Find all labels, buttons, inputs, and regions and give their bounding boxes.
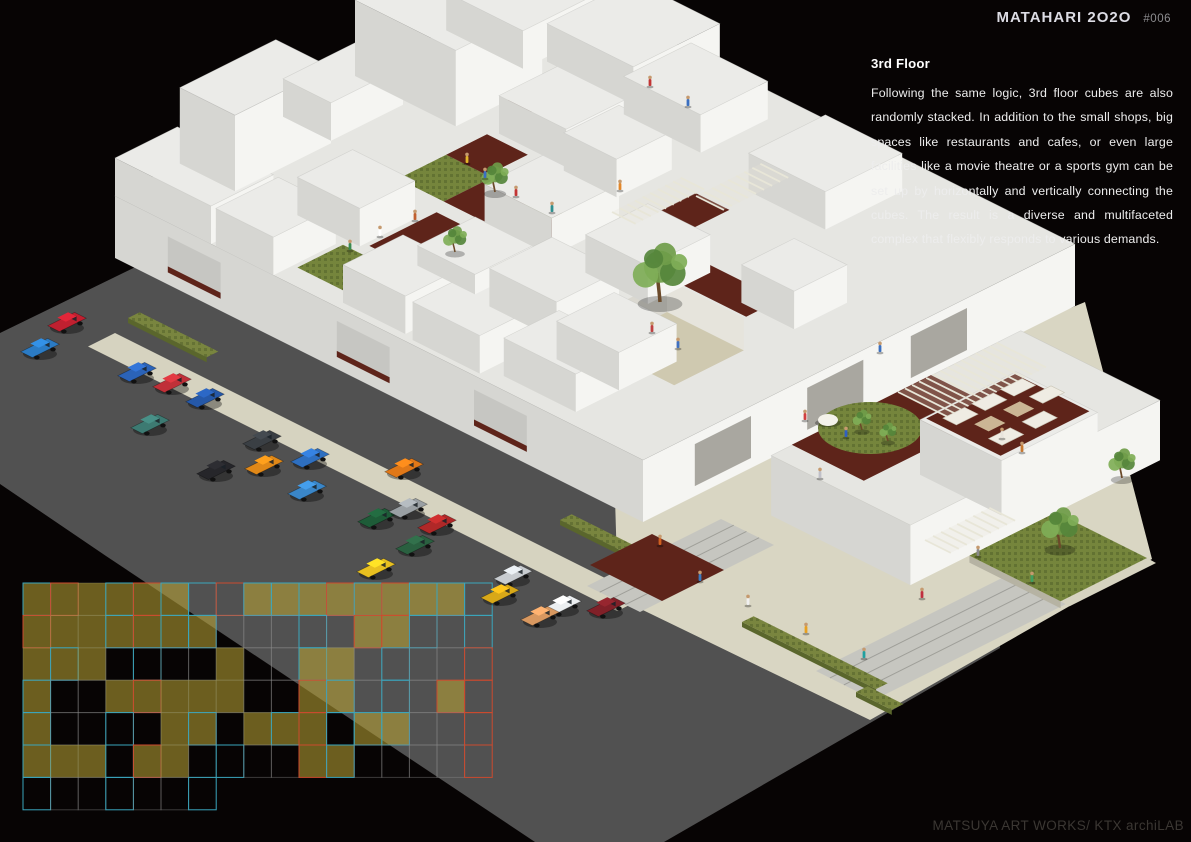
- person-head: [818, 468, 822, 472]
- plan-grid-cell: [382, 713, 410, 745]
- car-wheel: [371, 525, 377, 529]
- studio-credit: MATSUYA ART WORKS/ KTX archiLAB: [933, 818, 1184, 833]
- person-shadow: [649, 332, 656, 335]
- issue-number: #006: [1143, 13, 1171, 25]
- car-wheel: [304, 465, 310, 469]
- plan-grid-cell: [299, 713, 327, 745]
- person-shadow: [657, 545, 664, 548]
- plan-grid-cell: [299, 583, 327, 615]
- car-wheel: [402, 515, 408, 519]
- car-wheel: [386, 567, 392, 571]
- person-head: [976, 546, 980, 550]
- car-wheel: [572, 604, 578, 608]
- plan-grid-cell: [189, 713, 217, 745]
- car-wheel: [210, 477, 216, 481]
- plan-grid-cell: [23, 680, 51, 712]
- publication-title: MATAHARI 2O2O: [996, 9, 1131, 26]
- person-body: [699, 574, 702, 581]
- plan-grid-cell: [354, 583, 382, 615]
- person-body: [515, 189, 518, 196]
- person-head: [804, 623, 808, 627]
- person-body: [921, 591, 924, 598]
- plan-grid-cell: [437, 680, 465, 712]
- person-body: [1001, 431, 1004, 438]
- person-body: [819, 471, 822, 478]
- plan-grid-cell: [51, 745, 79, 777]
- plan-grid-cell: [189, 680, 217, 712]
- plan-grid-cell: [382, 615, 410, 647]
- car-wheel: [144, 431, 150, 435]
- car-wheel: [534, 623, 540, 627]
- car-wheel: [215, 397, 221, 401]
- car-wheel: [510, 593, 516, 597]
- plan-grid-cell: [216, 648, 244, 680]
- car-wheel: [550, 615, 556, 619]
- person-shadow: [843, 437, 850, 440]
- person-head: [413, 210, 417, 214]
- person-head: [878, 342, 882, 346]
- person-head: [698, 571, 702, 575]
- car-wheel: [301, 497, 307, 501]
- car-wheel: [61, 329, 67, 333]
- plan-grid-cell: [78, 648, 106, 680]
- floor-description: 3rd Floor Following the same logic, 3rd …: [871, 56, 1173, 252]
- person-body: [414, 213, 417, 220]
- person-body: [804, 413, 807, 420]
- person-shadow: [647, 86, 654, 89]
- plan-grid-cell: [271, 583, 299, 615]
- plan-grid-cell: [409, 583, 437, 615]
- person-shadow: [999, 438, 1006, 441]
- person-shadow: [675, 348, 682, 351]
- person-head: [676, 338, 680, 342]
- person-body: [484, 171, 487, 178]
- car-wheel: [414, 467, 420, 471]
- plan-grid-cell: [106, 583, 134, 615]
- floor-body-text: Following the same logic, 3rd floor cube…: [871, 81, 1173, 252]
- person-shadow: [347, 250, 354, 253]
- plan-grid-cell: [299, 745, 327, 777]
- plan-grid-cell: [133, 615, 161, 647]
- person-shadow: [685, 106, 692, 109]
- person-head: [1020, 442, 1024, 446]
- tree-foliage: [866, 414, 872, 420]
- car-wheel: [258, 472, 264, 476]
- person-body: [466, 156, 469, 163]
- car-wheel: [274, 464, 280, 468]
- car-wheel: [272, 439, 278, 443]
- tree-foliage: [1128, 454, 1136, 462]
- car-wheel: [418, 507, 424, 511]
- poster-canvas: MATAHARI 2O2O#006 3rd Floor Following th…: [0, 0, 1191, 842]
- plan-grid-cell: [271, 713, 299, 745]
- car-wheel: [320, 457, 326, 461]
- car-wheel: [523, 574, 529, 578]
- person-shadow: [802, 420, 809, 423]
- plan-grid-cell: [189, 615, 217, 647]
- person-body: [551, 205, 554, 212]
- person-body: [619, 183, 622, 190]
- plan-grid-cell: [106, 615, 134, 647]
- person-shadow: [877, 352, 884, 355]
- person-head: [550, 202, 554, 206]
- car-wheel: [431, 531, 437, 535]
- person-head: [514, 186, 518, 190]
- person-head: [844, 427, 848, 431]
- car-wheel: [398, 475, 404, 479]
- person-body: [349, 243, 352, 250]
- car-wheel: [131, 379, 137, 383]
- person-shadow: [697, 581, 704, 584]
- car-wheel: [147, 371, 153, 375]
- person-shadow: [377, 236, 384, 239]
- plan-grid-cell: [78, 615, 106, 647]
- car-wheel: [409, 552, 415, 556]
- tree-foliage: [460, 231, 467, 238]
- car-wheel: [199, 405, 205, 409]
- person-shadow: [617, 190, 624, 193]
- plan-grid-cell: [161, 583, 189, 615]
- person-body: [677, 341, 680, 348]
- person-shadow: [1019, 452, 1026, 455]
- plan-grid-cell: [244, 583, 272, 615]
- person-shadow: [1029, 582, 1036, 585]
- tree-shadow: [854, 429, 869, 435]
- car-wheel: [256, 447, 262, 451]
- person-head: [746, 595, 750, 599]
- tree-shadow: [881, 441, 895, 446]
- plan-grid-cell: [327, 745, 355, 777]
- person-shadow: [745, 605, 752, 608]
- person-head: [920, 588, 924, 592]
- person-head: [658, 535, 662, 539]
- car-wheel: [77, 321, 83, 325]
- person-body: [1021, 445, 1024, 452]
- car-wheel: [166, 390, 172, 394]
- plan-grid-cell: [354, 713, 382, 745]
- person-head: [648, 76, 652, 80]
- person-head: [1030, 572, 1034, 576]
- plan-grid-cell: [327, 680, 355, 712]
- car-wheel: [370, 575, 376, 579]
- car-wheel: [616, 606, 622, 610]
- person-shadow: [803, 633, 810, 636]
- person-shadow: [412, 220, 419, 223]
- tree-foliage: [1068, 515, 1079, 526]
- plan-grid-cell: [327, 648, 355, 680]
- deck-dome: [818, 414, 838, 426]
- person-shadow: [919, 598, 926, 601]
- plan-grid-cell: [23, 583, 51, 615]
- plan-grid-cell: [299, 648, 327, 680]
- plan-grid-cell: [106, 680, 134, 712]
- plan-grid-cell: [51, 583, 79, 615]
- person-body: [747, 598, 750, 605]
- plan-grid-cell: [23, 648, 51, 680]
- floor-heading: 3rd Floor: [871, 56, 1173, 71]
- plan-grid-cell: [437, 583, 465, 615]
- person-head: [465, 153, 469, 157]
- plan-grid-cell: [161, 680, 189, 712]
- plan-grid-cell: [51, 615, 79, 647]
- person-head: [686, 96, 690, 100]
- tree-foliage: [448, 229, 456, 237]
- plan-grid-cell: [161, 713, 189, 745]
- person-body: [977, 549, 980, 556]
- person-body: [863, 651, 866, 658]
- person-body: [1031, 575, 1034, 582]
- car-wheel: [447, 523, 453, 527]
- plan-grid-cell: [354, 615, 382, 647]
- person-body: [879, 345, 882, 352]
- plan-grid-cell: [161, 745, 189, 777]
- person-shadow: [482, 178, 489, 181]
- person-head: [378, 226, 382, 230]
- person-body: [651, 325, 654, 332]
- plan-grid-cell: [78, 583, 106, 615]
- plan-grid-cell: [133, 583, 161, 615]
- person-body: [659, 538, 662, 545]
- person-shadow: [817, 478, 824, 481]
- plan-grid-cell: [78, 745, 106, 777]
- deck-lawn-tex: [818, 402, 922, 454]
- tree-foliage: [487, 166, 497, 176]
- person-body: [687, 99, 690, 106]
- plan-grid-cell: [244, 713, 272, 745]
- plan-grid-cell: [161, 615, 189, 647]
- plan-grid-cell: [133, 745, 161, 777]
- car-wheel: [34, 355, 40, 359]
- tree-foliage: [644, 249, 663, 268]
- plan-grid-cell: [299, 680, 327, 712]
- plan-grid-cell: [23, 615, 51, 647]
- person-head: [650, 322, 654, 326]
- tree-foliage: [1049, 512, 1062, 525]
- person-shadow: [861, 658, 868, 661]
- tree-foliage: [892, 426, 897, 431]
- car-wheel: [387, 517, 393, 521]
- person-body: [805, 626, 808, 633]
- plan-grid-cell: [133, 680, 161, 712]
- car-wheel: [425, 544, 431, 548]
- person-head: [618, 180, 622, 184]
- plan-grid-cell: [216, 680, 244, 712]
- car-wheel: [494, 601, 500, 605]
- person-shadow: [513, 196, 520, 199]
- plan-grid-cell: [23, 713, 51, 745]
- car-wheel: [226, 469, 232, 473]
- person-shadow: [975, 556, 982, 559]
- plan-grid-cell: [327, 583, 355, 615]
- tree-foliage: [671, 254, 687, 270]
- masthead: MATAHARI 2O2O#006: [0, 9, 1171, 27]
- tree-foliage: [883, 425, 889, 431]
- person-head: [1000, 428, 1004, 432]
- car-wheel: [317, 489, 323, 493]
- car-wheel: [182, 382, 188, 386]
- plan-grid-cell: [382, 583, 410, 615]
- tree-foliage: [1114, 452, 1124, 462]
- car-wheel: [50, 347, 56, 351]
- person-head: [862, 648, 866, 652]
- person-head: [803, 410, 807, 414]
- car-wheel: [160, 423, 166, 427]
- person-shadow: [549, 212, 556, 215]
- plan-grid-cell: [23, 745, 51, 777]
- person-body: [649, 79, 652, 86]
- plan-grid-cell: [51, 648, 79, 680]
- person-shadow: [464, 163, 471, 166]
- car-wheel: [600, 614, 606, 618]
- person-body: [379, 229, 382, 236]
- tree-foliage: [857, 412, 864, 419]
- person-head: [348, 240, 352, 244]
- person-body: [845, 430, 848, 437]
- tree-foliage: [501, 168, 509, 176]
- person-head: [483, 168, 487, 172]
